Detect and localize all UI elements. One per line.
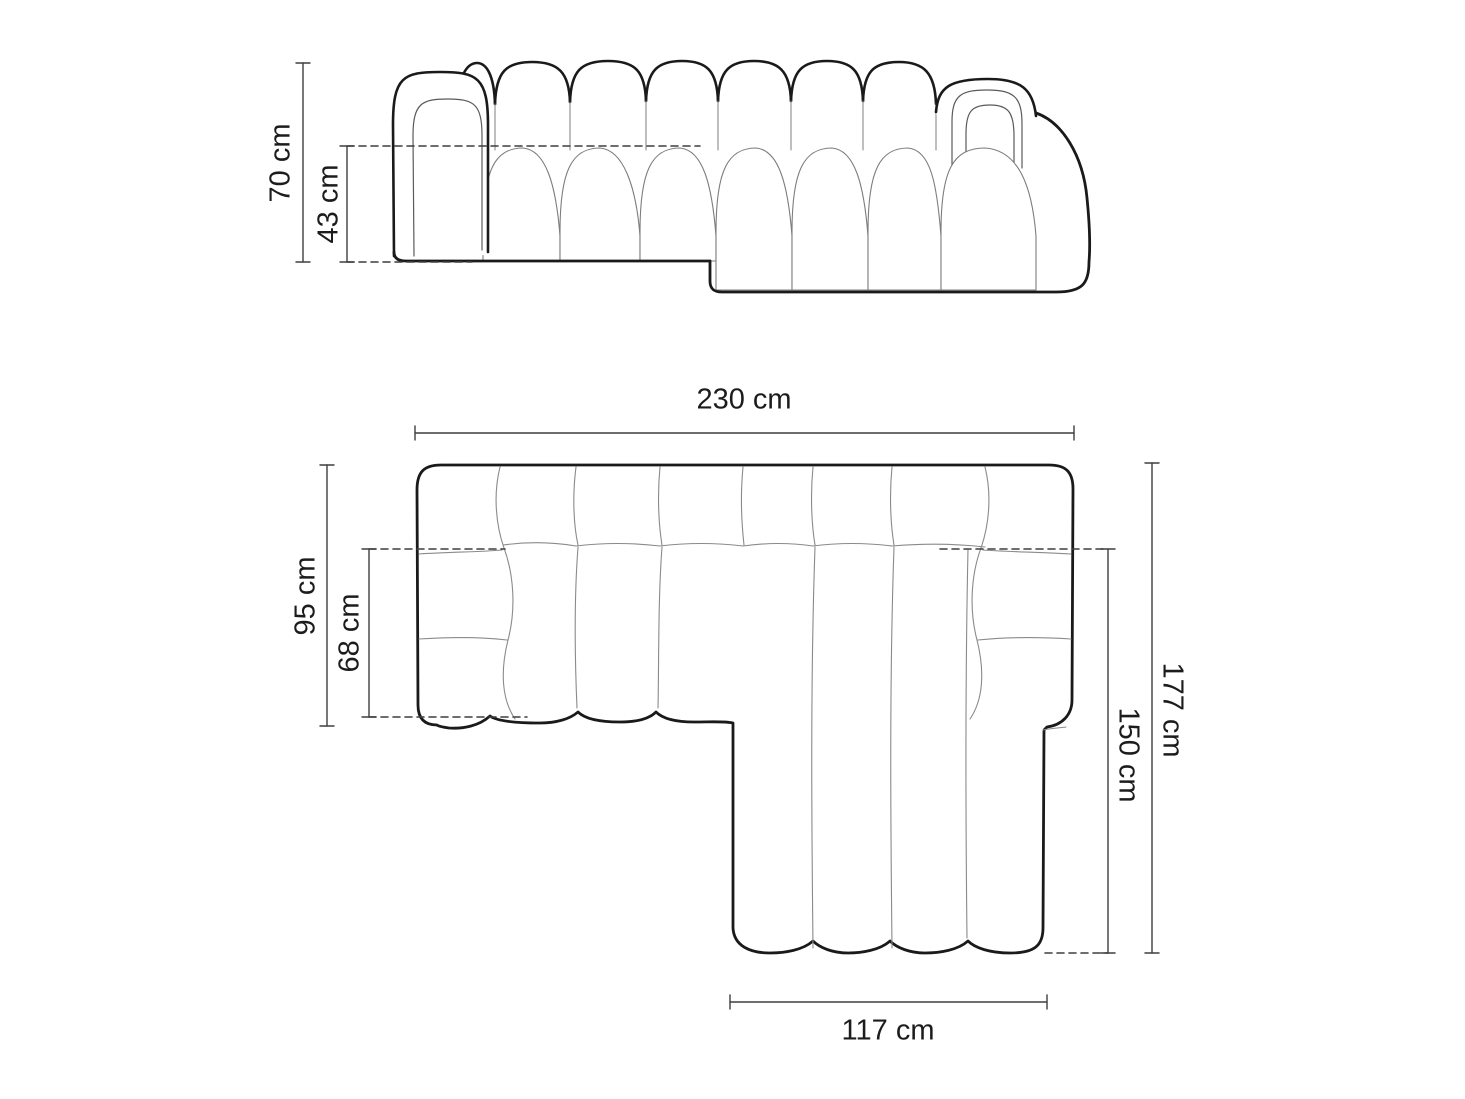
backrest-arches: [457, 61, 936, 108]
seat-cushions: [483, 148, 1036, 290]
backrest-channel-lines: [495, 101, 936, 150]
dimension-label-chaise-depth: 150 cm: [1114, 707, 1143, 802]
dimension-line-chaise-width: [730, 995, 1047, 1009]
sofa-line-art: [0, 0, 1465, 1099]
left-arm: [393, 72, 488, 258]
dimension-label-overall-depth: 177 cm: [1158, 662, 1187, 757]
dimension-label-depth: 95 cm: [292, 557, 321, 636]
side-elevation-view: [393, 61, 1090, 292]
dimension-label-chaise-width: 117 cm: [842, 1017, 935, 1046]
plan-outline: [417, 465, 1073, 953]
dimension-label-seat-height: 43 cm: [315, 165, 344, 244]
dimension-diagram: 70 cm 43 cm 230 cm 95 cm 68 cm 177 cm 15…: [0, 0, 1465, 1099]
dimension-line-width: [415, 426, 1074, 440]
dimension-label-height: 70 cm: [267, 124, 296, 203]
dimension-label-seat-depth: 68 cm: [336, 594, 365, 673]
dimension-label-width: 230 cm: [696, 386, 791, 415]
dimension-line-depth: [320, 465, 334, 726]
top-plan-view: [417, 465, 1073, 953]
dimension-line-height: [296, 63, 310, 262]
